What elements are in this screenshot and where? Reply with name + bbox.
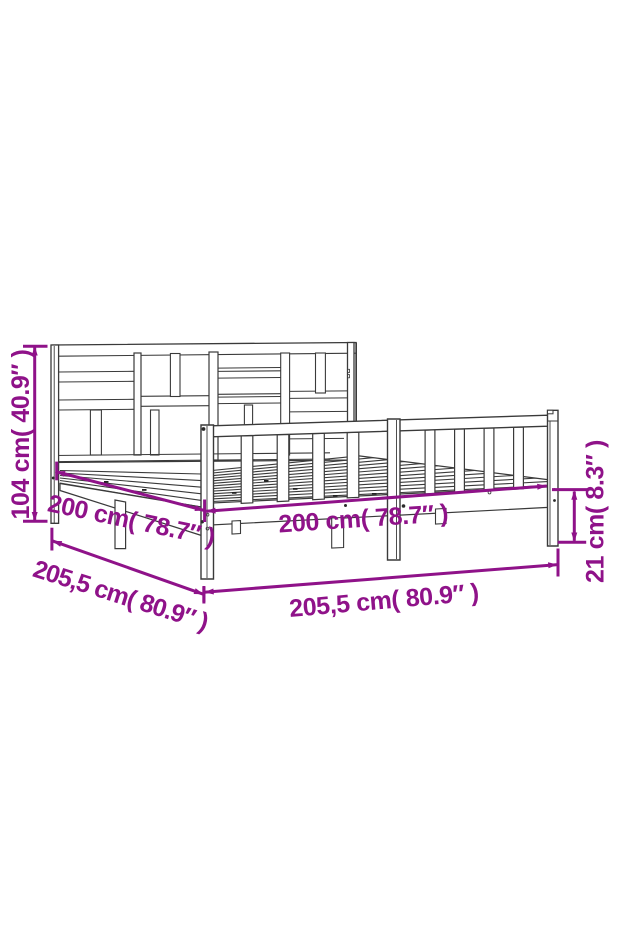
svg-text:21 cm( 8.3″ ): 21 cm( 8.3″ ) [582,440,610,583]
svg-text:104 cm( 40.9″ ): 104 cm( 40.9″ ) [7,349,35,519]
